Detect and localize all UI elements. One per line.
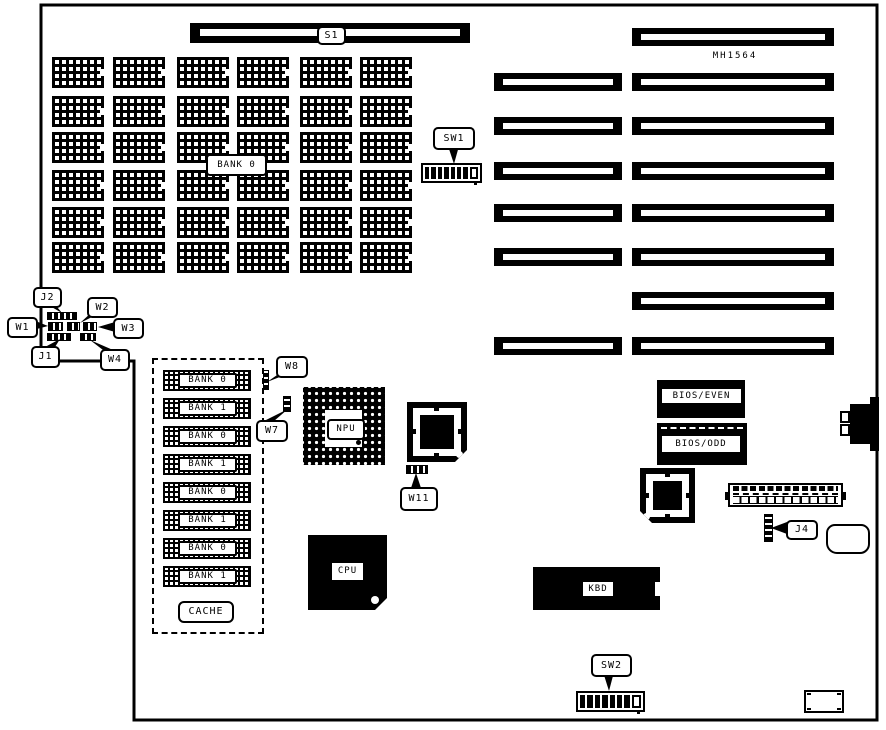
dram-chip	[52, 57, 104, 88]
dip-cell-on	[463, 167, 467, 179]
kbd-label: KBD	[583, 582, 613, 596]
j1-jumper-strip	[47, 333, 71, 341]
keyboard-din-connector-base	[870, 397, 879, 451]
dram-chip	[237, 242, 289, 273]
dip-cell-on	[451, 167, 455, 179]
dram-chip-notch	[225, 182, 229, 189]
expansion-slot	[632, 248, 834, 266]
expansion-slot	[494, 204, 622, 222]
callout-w4: W4	[100, 349, 130, 371]
dram-chip-notch	[348, 144, 352, 151]
cache-chip-label: BANK 1	[178, 457, 237, 472]
dram-chip-notch	[161, 182, 165, 189]
plcc-tick	[413, 429, 416, 434]
dram-chip	[360, 170, 412, 201]
callout-w11: W11	[400, 487, 438, 511]
dram-chip	[113, 96, 165, 127]
cache-chip: BANK 1	[163, 454, 251, 475]
bios-odd-label: BIOS/ODD	[661, 435, 741, 453]
dram-chip	[300, 96, 352, 127]
pin-header-connector	[728, 483, 843, 507]
dip-cell-on	[610, 695, 615, 708]
sw2-dip-switch	[576, 691, 645, 712]
callout-w3: W3	[113, 318, 144, 339]
dram-chip	[177, 96, 229, 127]
dram-chip	[360, 57, 412, 88]
dram-chip	[52, 242, 104, 273]
cache-chip-label: BANK 1	[178, 513, 237, 528]
cache-chip: BANK 1	[163, 398, 251, 419]
dram-chip	[177, 57, 229, 88]
expansion-slot	[632, 28, 834, 46]
callout-j2: J2	[33, 287, 62, 308]
cache-chip-label: BANK 0	[178, 485, 237, 500]
expansion-slot	[632, 204, 834, 222]
expansion-slot	[494, 248, 622, 266]
dram-chip-notch	[348, 108, 352, 115]
plcc-tick	[434, 453, 439, 456]
dram-chip	[52, 170, 104, 201]
plcc-tick	[434, 408, 439, 411]
pin-header-tab	[842, 492, 846, 500]
w4-jumper-strip	[80, 333, 96, 341]
dram-chip	[300, 57, 352, 88]
dram-chip	[113, 57, 165, 88]
cache-chip: BANK 1	[163, 566, 251, 587]
dram-chip-notch	[225, 219, 229, 226]
plcc-tick	[686, 493, 689, 498]
connector-pin-box	[840, 411, 850, 423]
socket-outline	[804, 690, 844, 713]
w7-jumper-strip	[283, 396, 291, 412]
dram-chip	[113, 170, 165, 201]
cache-chip-label: BANK 1	[178, 401, 237, 416]
pin-header-pins	[733, 486, 838, 491]
dip-cell-on	[595, 695, 600, 708]
plcc-tick	[458, 429, 461, 434]
j4-jumper-strip	[764, 514, 773, 542]
cache-chip-label: BANK 1	[178, 569, 237, 584]
dram-chip-notch	[225, 108, 229, 115]
callout-sw2: SW2	[591, 654, 632, 677]
dram-chip-notch	[100, 108, 104, 115]
dram-chip-notch	[100, 254, 104, 261]
dram-chip-notch	[100, 144, 104, 151]
motherboard-diagram: S1 MH1564 BANK 0 SW1 J2 W2 W1 W3 J1 W4 B…	[0, 0, 886, 730]
cache-chip: BANK 0	[163, 482, 251, 503]
w3-jumper-strip	[83, 322, 97, 331]
dram-chip	[177, 207, 229, 238]
dram-chip-notch	[348, 254, 352, 261]
callout-w1: W1	[7, 317, 38, 338]
dram-chip-notch	[100, 219, 104, 226]
dram-chip-notch	[161, 108, 165, 115]
npu-pin1-dot	[356, 440, 361, 445]
dram-chip-notch	[408, 108, 412, 115]
callout-w2: W2	[87, 297, 118, 318]
dram-chip-notch	[408, 69, 412, 76]
w11-jumper-strip	[406, 465, 428, 474]
cache-chip-label: BANK 0	[178, 429, 237, 444]
cache-label: CACHE	[178, 601, 234, 623]
dram-chip-notch	[161, 219, 165, 226]
pin-header-dash	[733, 493, 838, 495]
dip-cell-on	[580, 695, 585, 708]
dram-chip	[113, 132, 165, 163]
dip-cell-on	[438, 167, 442, 179]
dip-cell-on	[425, 167, 429, 179]
dram-chip	[237, 207, 289, 238]
dram-chip	[237, 57, 289, 88]
dram-chip-notch	[285, 108, 289, 115]
dram-chip	[113, 207, 165, 238]
npu-label: NPU	[327, 419, 365, 440]
dram-chip	[300, 207, 352, 238]
dram-chip-notch	[408, 182, 412, 189]
dram-chip-notch	[408, 144, 412, 151]
expansion-slot	[632, 337, 834, 355]
expansion-slot	[632, 162, 834, 180]
memory-bank-label: BANK 0	[206, 154, 267, 176]
dram-chip	[360, 132, 412, 163]
dip-switch-mark	[637, 710, 640, 714]
dip-cell-on	[431, 167, 435, 179]
dram-chip	[237, 96, 289, 127]
plcc-chip	[420, 415, 454, 449]
dram-chip-notch	[348, 182, 352, 189]
pin-header-tab	[725, 492, 729, 500]
board-model-text: MH1564	[695, 50, 775, 63]
cache-chip-label: BANK 0	[178, 373, 237, 388]
dram-chip-notch	[225, 69, 229, 76]
bios-odd-dash	[661, 427, 743, 429]
dip-cell-on	[457, 167, 461, 179]
dram-chip-notch	[161, 254, 165, 261]
dip-cell-off	[470, 167, 478, 179]
dram-chip	[52, 132, 104, 163]
plcc-pin1-dot	[456, 451, 463, 458]
dram-chip-notch	[225, 144, 229, 151]
dram-chip-notch	[408, 254, 412, 261]
plcc-socket	[407, 402, 467, 462]
expansion-slot	[494, 117, 622, 135]
expansion-slot	[494, 73, 622, 91]
plcc-pin1-dot	[643, 513, 650, 520]
dram-chip-notch	[161, 69, 165, 76]
plcc-tick	[646, 493, 649, 498]
expansion-slot	[494, 337, 622, 355]
callout-w8: W8	[276, 356, 308, 378]
w8-jumper-strip	[263, 370, 269, 390]
dip-cell-off	[632, 695, 641, 708]
j2-jumper-strip	[47, 312, 77, 320]
dram-chip-notch	[348, 219, 352, 226]
cache-chip: BANK 0	[163, 370, 251, 391]
dram-chip-notch	[285, 182, 289, 189]
dip-cell-on	[444, 167, 448, 179]
dip-cell-on	[602, 695, 607, 708]
dram-chip-notch	[225, 254, 229, 261]
dram-chip	[300, 242, 352, 273]
callout-w7: W7	[256, 420, 288, 442]
dram-chip-notch	[100, 182, 104, 189]
connector-pin-box	[840, 424, 850, 436]
expansion-slot	[632, 117, 834, 135]
sw1-dip-switch	[421, 163, 482, 183]
dram-chip-notch	[285, 144, 289, 151]
dram-chip-notch	[348, 69, 352, 76]
w1-jumper-strip	[48, 322, 63, 331]
cache-chip: BANK 0	[163, 426, 251, 447]
kbd-chip-notch	[655, 582, 660, 596]
dram-chip	[300, 170, 352, 201]
expansion-slot	[632, 292, 834, 310]
plcc-socket	[640, 468, 695, 523]
plcc-tick	[665, 474, 670, 477]
dram-chip-notch	[100, 69, 104, 76]
dram-chip-notch	[161, 144, 165, 151]
dip-cell-on	[587, 695, 592, 708]
dram-chip	[360, 207, 412, 238]
callout-j4: J4	[786, 520, 818, 540]
plcc-chip	[653, 481, 682, 510]
dip-switch-mark	[474, 181, 477, 185]
dram-chip	[360, 96, 412, 127]
dram-chip	[113, 242, 165, 273]
dram-chip-notch	[285, 254, 289, 261]
plcc-tick	[665, 514, 670, 517]
expansion-slot	[632, 73, 834, 91]
dram-chip-notch	[285, 69, 289, 76]
bios-even-label: BIOS/EVEN	[661, 388, 742, 404]
callout-j1: J1	[31, 346, 60, 368]
dram-chip-notch	[285, 219, 289, 226]
cache-chip: BANK 0	[163, 538, 251, 559]
cache-chip: BANK 1	[163, 510, 251, 531]
w2-jumper-strip	[67, 322, 80, 331]
callout-sw1: SW1	[433, 127, 475, 150]
callout-s1: S1	[317, 26, 346, 45]
dram-chip	[52, 207, 104, 238]
dram-chip	[177, 242, 229, 273]
battery-outline	[826, 524, 870, 554]
dram-chip	[300, 132, 352, 163]
dram-chip	[360, 242, 412, 273]
expansion-slot	[494, 162, 622, 180]
dram-chip-notch	[408, 219, 412, 226]
callout-tail	[771, 522, 787, 534]
pin-header-holes	[733, 496, 838, 504]
cpu-label: CPU	[332, 563, 363, 580]
dip-cell-on	[617, 695, 622, 708]
callout-tail	[411, 473, 421, 488]
dram-chip	[52, 96, 104, 127]
cpu-pin1-dot	[371, 596, 379, 604]
cache-chip-label: BANK 0	[178, 541, 237, 556]
dip-cell-on	[624, 695, 629, 708]
